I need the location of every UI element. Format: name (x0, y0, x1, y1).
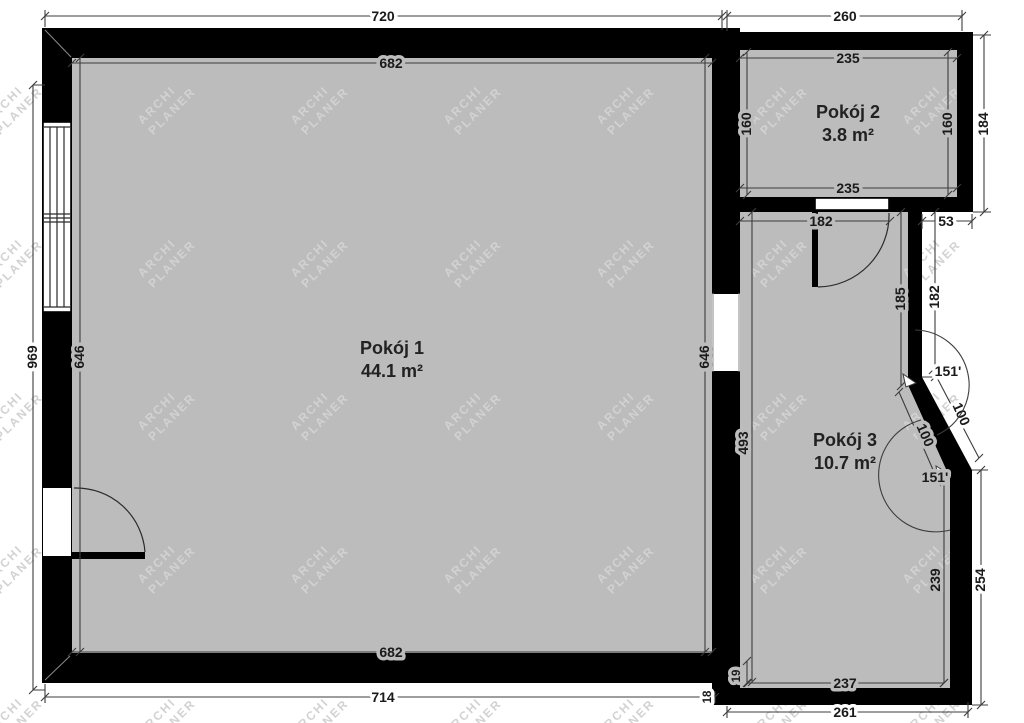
angle-label-bottom: 151' (922, 469, 949, 485)
dim-p2-left-inner: 160 (738, 112, 754, 136)
dim-p3-right-inner: 239 (927, 568, 943, 592)
dim-top-right-outer: 260 (833, 8, 857, 24)
wall-p3-right (950, 470, 972, 705)
wall-p2-top (722, 32, 973, 50)
dim-hall-right-inner: 185 (892, 287, 908, 311)
dim-p1-top-inner: 682 (379, 55, 403, 71)
angle-label-top: 151' (935, 363, 962, 379)
dim-p1-bottom-inner: 682 (379, 644, 403, 660)
dim-p2-right-outer: 184 (975, 112, 991, 136)
dim-p1-left-inner: 646 (71, 345, 87, 369)
dim-p2-top-inner: 235 (836, 50, 860, 66)
dim-p3-left-inner: 493 (735, 431, 751, 455)
dim-p2-bottom-inner: 235 (836, 180, 860, 196)
passage-divider (712, 293, 740, 372)
dim-hall-seg-left: 182 (809, 213, 833, 229)
dim-p1-bottom-outer: 714 (371, 689, 395, 705)
wall-p1-top (42, 28, 740, 58)
floor-plan-page: ARCHI PLANER (0, 0, 1024, 723)
door-left-leaf (71, 552, 145, 559)
dim-p3-right-outer: 254 (972, 568, 988, 592)
dim-top-left-outer: 720 (371, 8, 395, 24)
floor-plan-drawing: ARCHI PLANER (0, 0, 1024, 723)
room-1-area: 44.1 m² (361, 361, 423, 381)
dim-p2-right-inner: 160 (939, 112, 955, 136)
room-2-name: Pokój 2 (816, 102, 880, 122)
dim-step-offset: 18 (702, 690, 714, 703)
dim-p3-bottom-inner: 237 (833, 675, 857, 691)
room-3-area: 10.7 m² (814, 453, 876, 473)
room-1-name: Pokój 1 (360, 338, 424, 358)
dim-p1-right-inner: 646 (696, 345, 712, 369)
dim-p3-bottom-outer: 261 (833, 704, 857, 720)
window-left (43, 122, 71, 312)
dim-step-small: 19 (731, 670, 743, 683)
wall-hall-right (908, 212, 922, 385)
dim-hall-right-outer: 182 (926, 285, 942, 309)
dim-left-outer: 969 (24, 345, 40, 369)
dim-hall-seg-right: 53 (938, 213, 954, 229)
room-2-area: 3.8 m² (822, 125, 874, 145)
room-3-name: Pokój 3 (813, 430, 877, 450)
